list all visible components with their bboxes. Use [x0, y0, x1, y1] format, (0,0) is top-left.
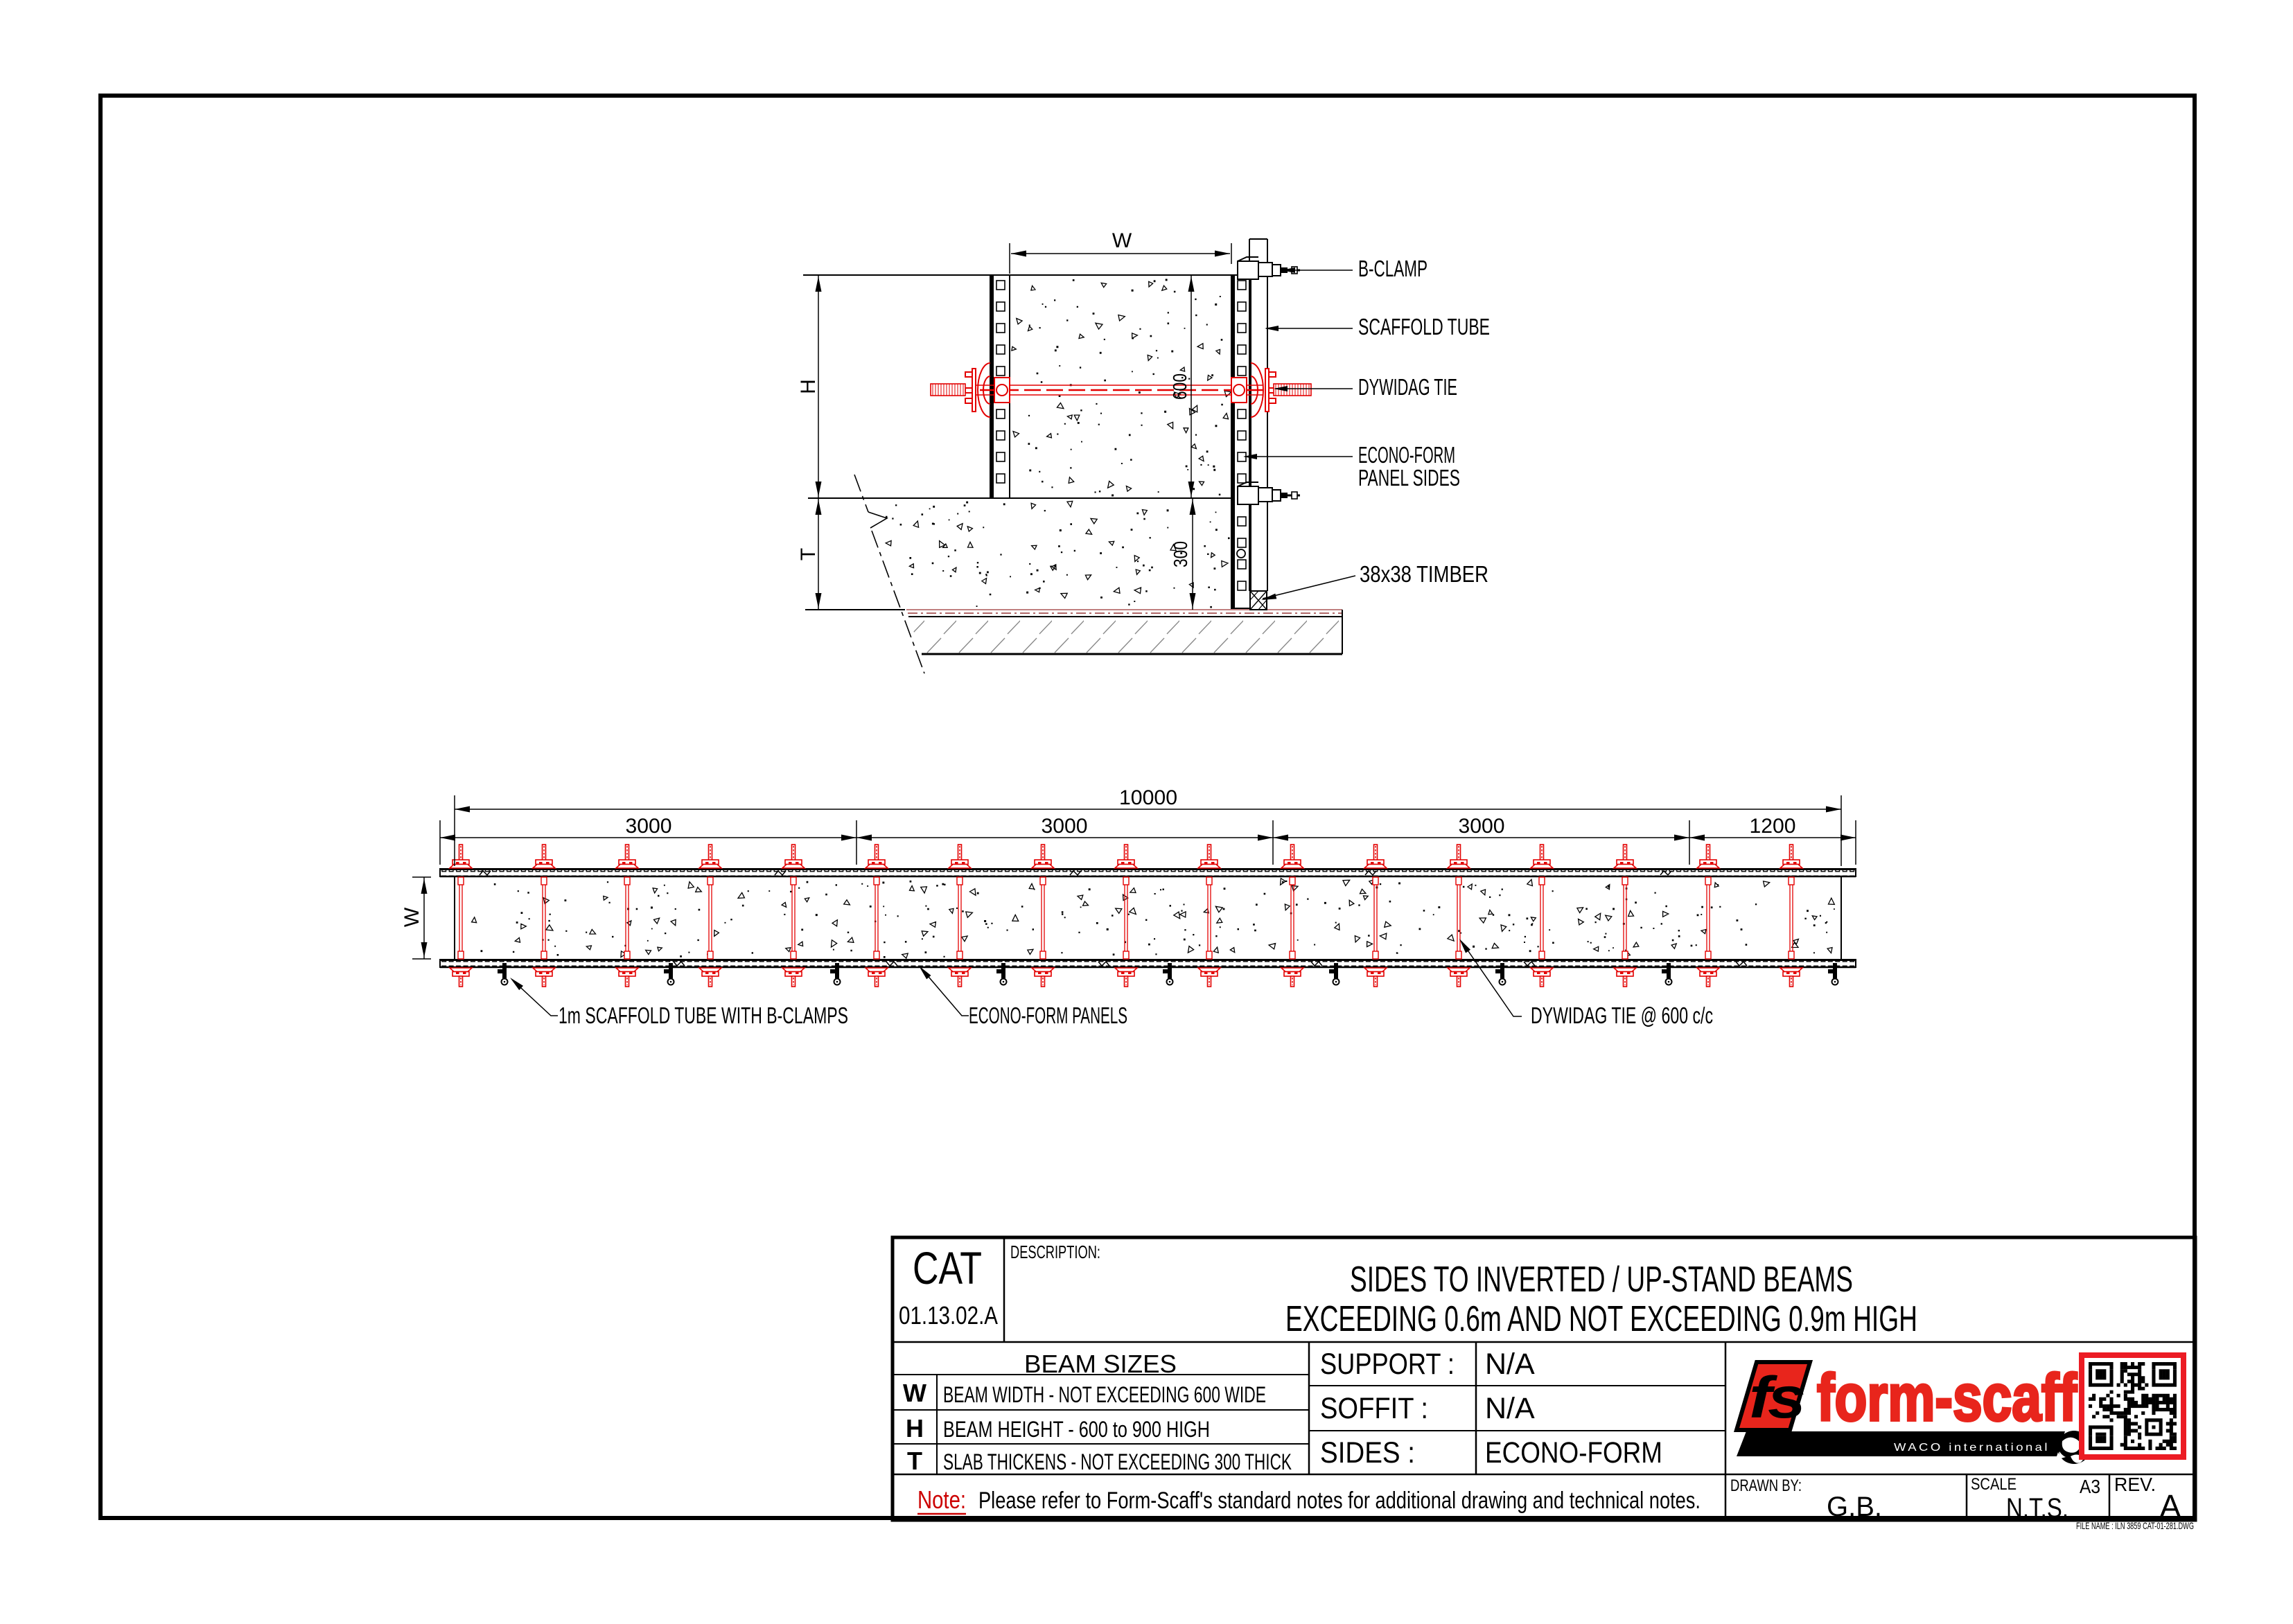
svg-text:38x38 TIMBER: 38x38 TIMBER — [1360, 561, 1488, 587]
svg-text:DESCRIPTION:: DESCRIPTION: — [1010, 1242, 1100, 1262]
svg-text:Please refer to Form-Scaff's s: Please refer to Form-Scaff's standard no… — [978, 1488, 1701, 1514]
svg-text:DYWIDAG TIE @ 600 c/c: DYWIDAG TIE @ 600 c/c — [1531, 1003, 1713, 1028]
svg-text:600: 600 — [1169, 373, 1191, 400]
svg-text:ECONO-FORM PANELS: ECONO-FORM PANELS — [969, 1003, 1127, 1028]
svg-text:3000: 3000 — [626, 815, 672, 838]
svg-text:G.B.: G.B. — [1827, 1492, 1882, 1522]
svg-text:FILE NAME : ILN 3859 CAT-01-28: FILE NAME : ILN 3859 CAT-01-281.DWG — [2076, 1520, 2194, 1531]
svg-text:3000: 3000 — [1042, 815, 1088, 838]
svg-text:N/A: N/A — [1485, 1392, 1535, 1425]
svg-text:SOFFIT :: SOFFIT : — [1320, 1392, 1428, 1425]
svg-text:1200: 1200 — [1750, 815, 1796, 838]
svg-text:DRAWN BY:: DRAWN BY: — [1730, 1476, 1802, 1495]
svg-text:SCALE: SCALE — [1971, 1475, 2017, 1494]
svg-text:SLAB THICKENS - NOT EXCEEDING: SLAB THICKENS - NOT EXCEEDING 300 THICK — [943, 1449, 1292, 1474]
svg-text:SIDES TO INVERTED / UP-STAND B: SIDES TO INVERTED / UP-STAND BEAMS — [1350, 1260, 1853, 1300]
svg-text:W: W — [903, 1379, 926, 1407]
svg-text:CAT: CAT — [913, 1242, 982, 1294]
svg-text:B-CLAMP: B-CLAMP — [1358, 256, 1427, 281]
svg-text:N/A: N/A — [1485, 1348, 1535, 1381]
svg-text:BEAM WIDTH - NOT EXCEEDING 600: BEAM WIDTH - NOT EXCEEDING 600 WIDE — [943, 1382, 1266, 1407]
svg-text:300: 300 — [1170, 541, 1191, 567]
svg-text:SIDES :: SIDES : — [1320, 1436, 1415, 1469]
svg-text:Note:: Note: — [917, 1485, 966, 1514]
svg-text:SUPPORT :: SUPPORT : — [1320, 1348, 1455, 1381]
svg-text:H: H — [906, 1414, 924, 1442]
svg-text:W: W — [1112, 229, 1132, 252]
svg-text:01.13.02.A: 01.13.02.A — [899, 1301, 998, 1330]
svg-text:PANEL SIDES: PANEL SIDES — [1358, 465, 1460, 491]
svg-text:T: T — [797, 548, 820, 561]
svg-text:T: T — [907, 1447, 922, 1475]
svg-text:ECONO-FORM: ECONO-FORM — [1358, 442, 1455, 468]
svg-text:H: H — [797, 379, 820, 394]
svg-text:1m SCAFFOLD TUBE WITH B-CLAMPS: 1m SCAFFOLD TUBE WITH B-CLAMPS — [559, 1003, 848, 1028]
svg-text:EXCEEDING 0.6m AND NOT EXCEEDI: EXCEEDING 0.6m AND NOT EXCEEDING 0.9m HI… — [1285, 1299, 1917, 1339]
svg-text:fs: fs — [1749, 1365, 1804, 1430]
svg-text:DYWIDAG TIE: DYWIDAG TIE — [1358, 374, 1457, 400]
svg-text:form-scaff: form-scaff — [1817, 1361, 2077, 1435]
svg-text:A: A — [2160, 1488, 2181, 1524]
svg-text:WACO international: WACO international — [1894, 1442, 2050, 1454]
svg-text:SCAFFOLD TUBE: SCAFFOLD TUBE — [1358, 314, 1490, 339]
svg-text:W: W — [401, 907, 423, 927]
svg-text:ECONO-FORM: ECONO-FORM — [1485, 1436, 1662, 1469]
svg-text:A3: A3 — [2080, 1476, 2100, 1497]
svg-text:3000: 3000 — [1459, 815, 1505, 838]
svg-text:BEAM HEIGHT - 600 to 900 HIGH: BEAM HEIGHT - 600 to 900 HIGH — [943, 1417, 1210, 1442]
svg-text:10000: 10000 — [1119, 786, 1177, 809]
svg-text:REV.: REV. — [2114, 1474, 2156, 1495]
svg-text:N.T.S.: N.T.S. — [2006, 1493, 2068, 1524]
svg-text:BEAM SIZES: BEAM SIZES — [1024, 1350, 1177, 1378]
